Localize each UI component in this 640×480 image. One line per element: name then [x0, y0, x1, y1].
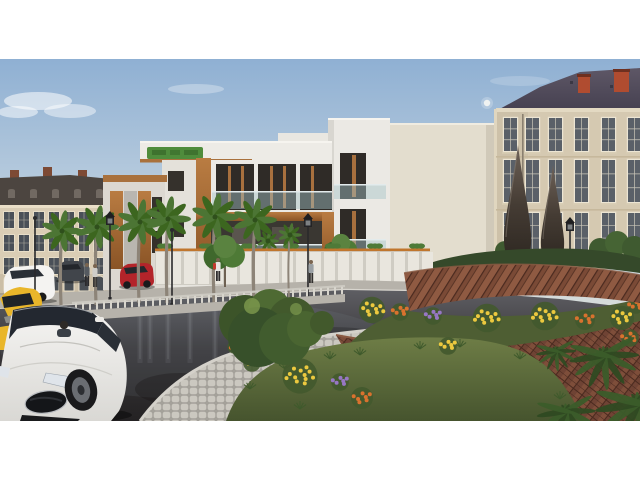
flower	[361, 391, 365, 395]
fence-planter	[409, 243, 425, 248]
planter-plant	[333, 243, 341, 248]
flower	[631, 305, 635, 309]
render-svg	[0, 59, 640, 421]
person-leg	[311, 273, 313, 283]
green-sign	[147, 147, 203, 159]
person-leg	[218, 271, 220, 281]
baluster	[117, 301, 119, 309]
window	[628, 160, 640, 202]
fence-panel	[268, 252, 279, 284]
window-sill	[573, 152, 590, 154]
dormer	[52, 189, 59, 198]
flower	[443, 345, 447, 349]
flower	[497, 317, 501, 321]
flower	[368, 392, 372, 396]
moon-group	[481, 97, 493, 109]
baluster	[208, 295, 210, 303]
wheel	[123, 281, 131, 289]
person-leg	[216, 271, 218, 281]
flower	[628, 312, 632, 316]
chimney-cap	[613, 69, 630, 72]
chimney	[614, 70, 629, 92]
flower-cluster	[473, 304, 502, 333]
flower	[365, 398, 369, 402]
flower	[361, 306, 365, 310]
flower	[352, 394, 356, 398]
dormer	[30, 189, 37, 198]
flower	[299, 369, 303, 373]
flower	[402, 312, 406, 316]
flower	[374, 307, 378, 311]
fence-planter	[325, 243, 341, 248]
person-torso	[215, 262, 220, 271]
dormer	[74, 189, 81, 198]
flower-cluster	[351, 387, 373, 409]
fence-panel	[352, 252, 363, 284]
reflection-streak	[214, 307, 215, 359]
window-sill	[547, 152, 564, 154]
flower	[331, 378, 335, 382]
chimney-cap	[577, 74, 591, 77]
flower	[311, 376, 315, 380]
window-opening	[168, 171, 184, 191]
flower	[547, 313, 551, 317]
flower	[335, 381, 339, 385]
letterbox-bar-top	[0, 0, 640, 59]
flower	[391, 308, 395, 312]
fence-panel	[338, 252, 349, 284]
shrub-highlight	[290, 303, 302, 315]
flower	[438, 311, 442, 315]
person-torso	[308, 264, 313, 273]
letterbox-bar-bottom	[0, 421, 640, 480]
flower	[381, 309, 385, 313]
flower	[367, 313, 371, 317]
baluster	[299, 289, 301, 297]
flower	[482, 321, 486, 325]
baluster	[89, 302, 91, 310]
flower	[540, 319, 544, 323]
palm-crown	[60, 229, 65, 234]
person-head	[309, 260, 313, 264]
flower	[342, 382, 346, 386]
compound-fence	[155, 243, 433, 285]
baluster	[159, 298, 161, 306]
flower	[338, 376, 342, 380]
flower	[375, 310, 379, 314]
fence-planter	[367, 243, 383, 248]
flower	[548, 317, 552, 321]
flower	[621, 311, 625, 315]
flower	[531, 316, 535, 320]
flower	[371, 303, 375, 307]
flower	[473, 318, 477, 322]
baluster	[96, 302, 98, 310]
architectural-render-image	[0, 59, 640, 421]
side-mirror	[95, 317, 104, 322]
flower	[292, 367, 296, 371]
window	[628, 118, 640, 151]
cloud	[44, 104, 96, 118]
planter-plant	[375, 243, 383, 248]
lamp-pole	[109, 217, 111, 301]
flower-cluster	[531, 302, 560, 331]
flower	[624, 315, 628, 319]
flower	[493, 312, 497, 316]
flower	[620, 334, 624, 338]
lamp-pole	[34, 219, 36, 297]
palm-crown	[253, 218, 258, 223]
flower	[365, 301, 369, 305]
flower	[288, 372, 292, 376]
palm-crown	[166, 217, 171, 222]
fence-panel	[324, 252, 335, 284]
driver-head	[60, 321, 68, 329]
shrub	[310, 311, 334, 335]
fence-panel	[380, 252, 391, 284]
flower	[303, 381, 307, 385]
baluster	[166, 298, 168, 306]
flower	[544, 309, 548, 313]
flower	[629, 332, 633, 336]
handrail	[334, 184, 386, 186]
flower	[539, 315, 543, 319]
palm-crown	[288, 233, 293, 238]
baluster	[306, 289, 308, 297]
baluster	[131, 300, 133, 308]
flower	[538, 307, 542, 311]
flower	[345, 377, 349, 381]
flower	[625, 318, 629, 322]
fence-panel	[296, 252, 307, 284]
reflection-streak	[167, 307, 168, 359]
flower	[378, 304, 382, 308]
planter-plant	[417, 243, 425, 248]
baluster	[187, 296, 189, 304]
roof-window	[610, 85, 613, 88]
chimney	[578, 75, 590, 93]
person-head	[85, 263, 89, 267]
flower	[551, 310, 555, 314]
fence-panel	[184, 252, 195, 284]
tree-canopy	[213, 235, 236, 258]
baluster	[138, 299, 140, 307]
screenshot-canvas	[0, 0, 640, 480]
flower	[357, 400, 361, 404]
flower	[446, 340, 450, 344]
baluster	[215, 295, 217, 303]
flower	[575, 316, 579, 320]
quoin-edge	[494, 109, 497, 269]
palm-crown	[95, 225, 100, 230]
palm-crown	[266, 239, 271, 244]
fence-panel	[254, 252, 265, 284]
flower	[304, 377, 308, 381]
window-sill	[502, 152, 519, 154]
person-leg	[85, 276, 87, 286]
flower-foliage	[473, 304, 502, 333]
palm-crown	[213, 215, 218, 220]
flower	[555, 315, 559, 319]
wheel	[143, 280, 151, 288]
flower	[405, 307, 409, 311]
flower	[308, 370, 312, 374]
flower	[611, 314, 615, 318]
flower	[439, 342, 443, 346]
flower	[489, 315, 493, 319]
baluster	[173, 297, 175, 305]
flower	[615, 310, 619, 314]
person-leg	[95, 277, 97, 287]
shrub-highlight	[244, 298, 260, 314]
flower	[295, 379, 299, 383]
flower	[435, 316, 439, 320]
flower	[398, 306, 402, 310]
baluster	[145, 299, 147, 307]
flower	[304, 365, 308, 369]
baluster	[180, 297, 182, 305]
baluster	[334, 287, 336, 295]
person-torso	[84, 267, 89, 276]
baluster	[222, 294, 224, 302]
flower	[616, 317, 620, 321]
flower	[428, 315, 432, 319]
sign-mark	[170, 150, 180, 155]
lamp-head	[170, 228, 174, 232]
flower	[579, 319, 583, 323]
backpack	[213, 263, 216, 270]
flower-foliage	[575, 310, 595, 330]
flower	[534, 312, 538, 316]
baluster	[341, 287, 343, 295]
baluster	[124, 300, 126, 308]
flower	[617, 320, 621, 324]
baluster	[152, 298, 154, 306]
moon	[484, 100, 490, 106]
flower	[486, 311, 490, 315]
palm-crown	[138, 220, 143, 225]
reflection-streak	[189, 307, 190, 359]
cloud	[490, 76, 550, 86]
sign-mark	[152, 150, 166, 155]
baluster	[110, 301, 112, 309]
flower-cluster	[359, 297, 385, 323]
person-leg	[87, 276, 89, 286]
flower	[424, 312, 428, 316]
flower-foliage	[531, 302, 560, 331]
car-glass	[62, 264, 81, 270]
eaves-cornice	[496, 108, 640, 112]
lamp-pole	[171, 231, 173, 307]
fence-panel	[366, 252, 377, 284]
window-sill	[600, 203, 617, 205]
window-sill	[626, 203, 640, 205]
pergola	[103, 175, 167, 182]
window-sill	[573, 203, 590, 205]
flower	[453, 341, 457, 345]
flower	[591, 314, 595, 318]
sign-mark	[184, 150, 198, 155]
window-sill	[600, 152, 617, 154]
roof-window	[570, 81, 573, 84]
flower	[481, 317, 485, 321]
lamp-head	[33, 216, 37, 220]
baluster	[82, 303, 84, 311]
flower	[587, 320, 591, 324]
flower	[366, 309, 370, 313]
person-leg	[309, 273, 311, 283]
baluster	[313, 288, 315, 296]
baluster	[194, 296, 196, 304]
cloud	[168, 84, 224, 94]
flower	[490, 319, 494, 323]
flower	[395, 311, 399, 315]
baluster	[320, 288, 322, 296]
flower	[431, 310, 435, 314]
person-torso	[92, 268, 97, 277]
glass-balustrade	[334, 185, 386, 199]
person-head	[216, 258, 220, 262]
person-head	[93, 264, 97, 268]
dormer	[96, 189, 103, 198]
flower	[293, 375, 297, 379]
baluster	[201, 295, 203, 303]
flower	[627, 302, 631, 306]
flower	[284, 376, 288, 380]
dormer	[8, 189, 15, 198]
baluster	[327, 288, 329, 296]
flower	[584, 314, 588, 318]
baluster	[103, 302, 105, 310]
person-leg	[93, 277, 95, 287]
lantern-glass	[568, 225, 573, 230]
fence-coping	[155, 249, 430, 252]
flower	[480, 309, 484, 313]
window-sill	[524, 152, 541, 154]
handrail	[212, 191, 332, 193]
window-sill	[626, 152, 640, 154]
driver-torso	[57, 329, 71, 337]
baluster	[292, 290, 294, 298]
lantern-glass	[306, 221, 311, 226]
lantern-glass	[108, 219, 113, 224]
flower	[450, 346, 454, 350]
flower	[303, 373, 307, 377]
flower	[476, 314, 480, 318]
fence-panel	[394, 252, 405, 284]
